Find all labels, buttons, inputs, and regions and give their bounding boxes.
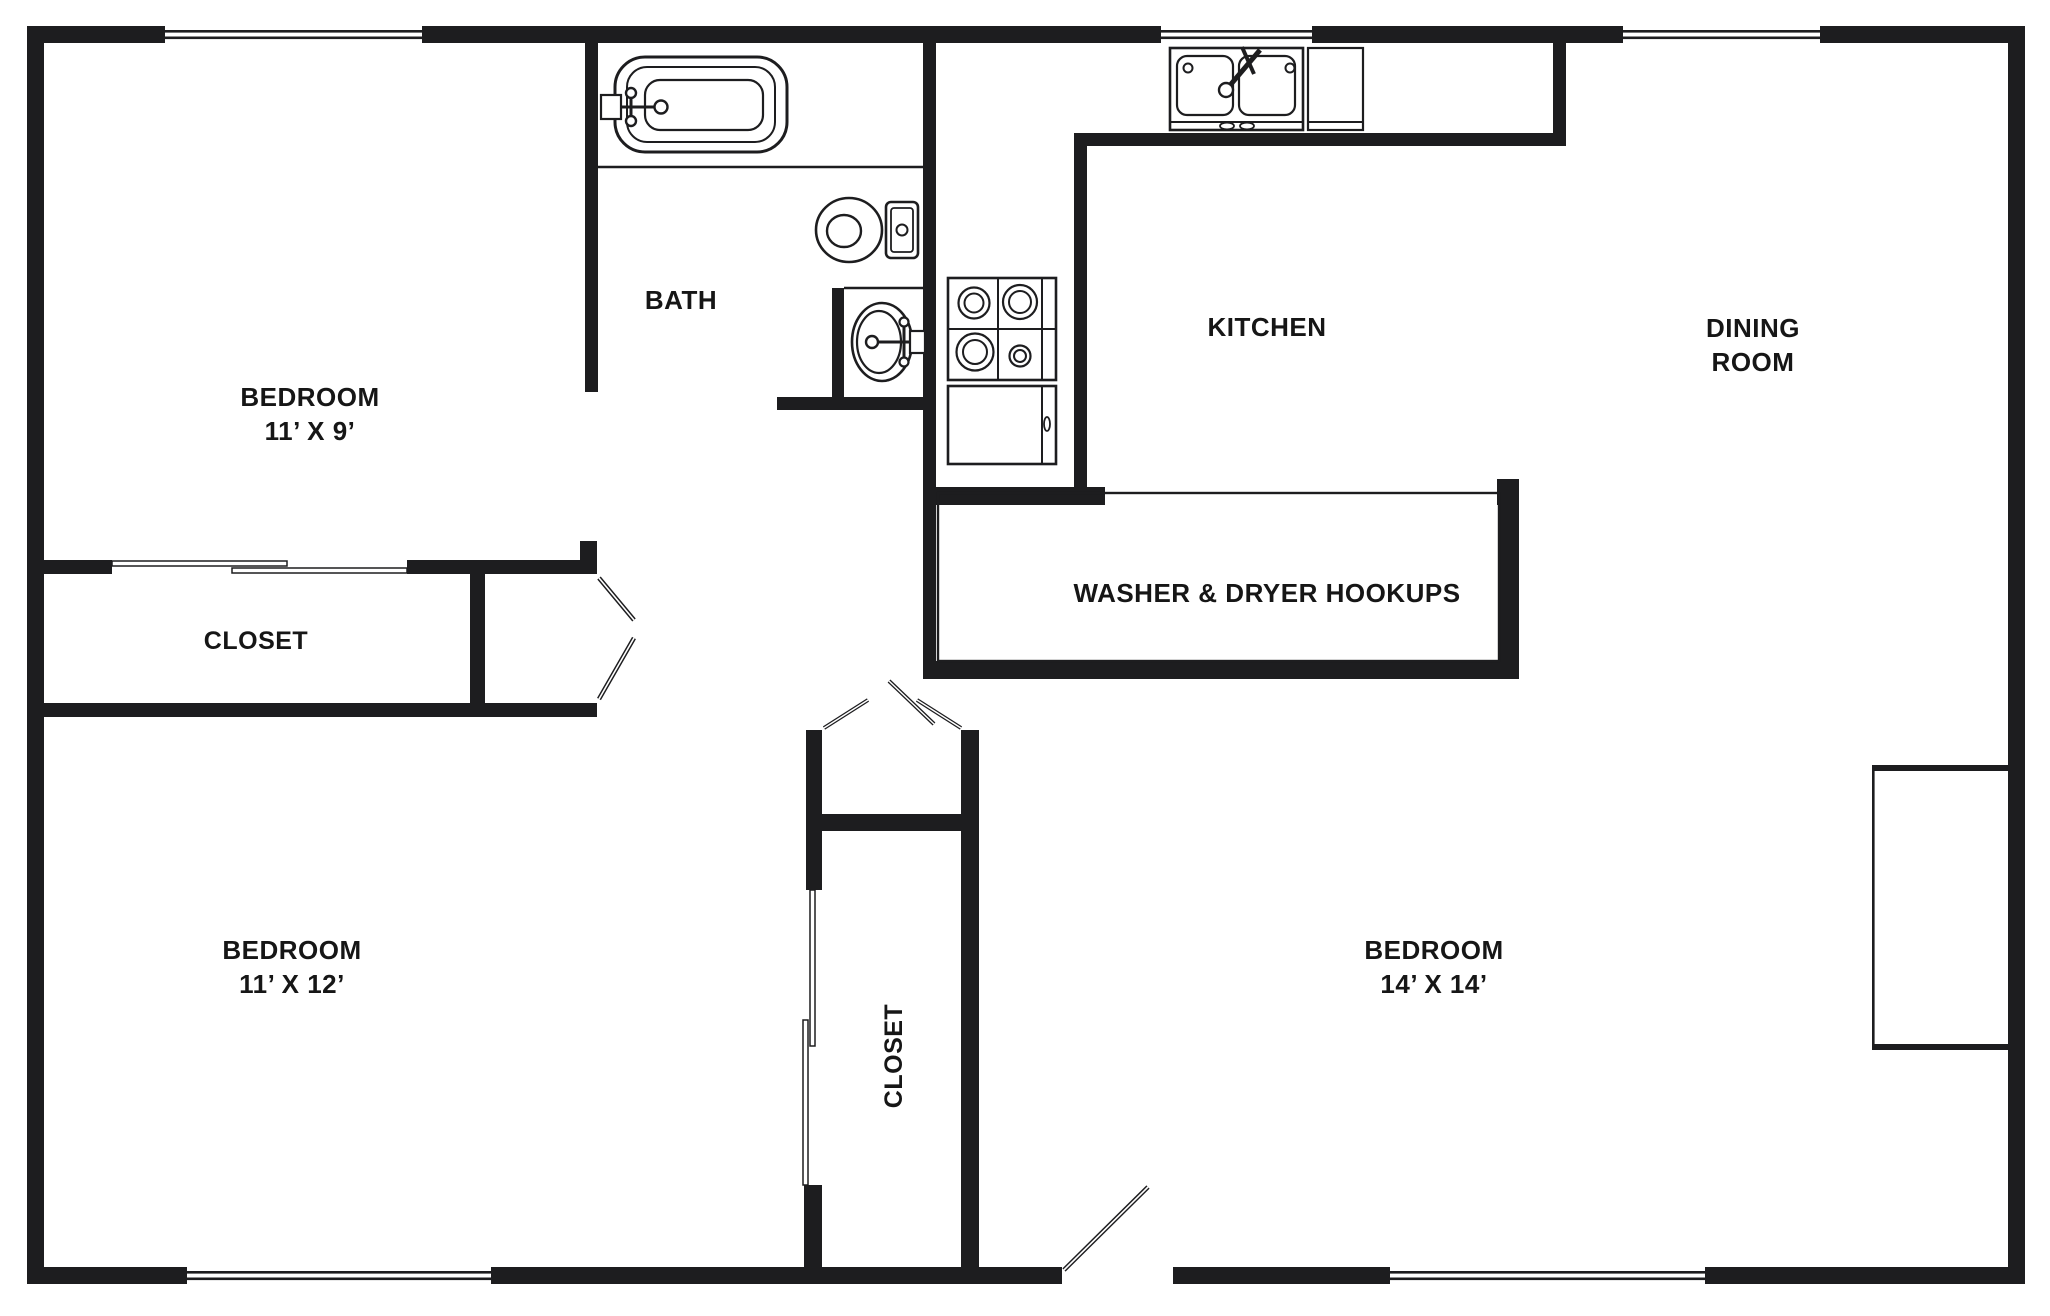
wall-right — [2008, 26, 2025, 1284]
stove-icon — [948, 278, 1056, 380]
toilet-icon — [816, 198, 918, 262]
wall-bedroom1-bath — [585, 43, 598, 392]
wall-bedcloset-bottom-stub — [804, 1185, 822, 1267]
wall-kitchen-dining-stub — [1553, 43, 1566, 133]
room-size: 11’ X 12’ — [222, 967, 361, 1001]
window-icon — [187, 1267, 491, 1284]
wall-laundry-bottom — [923, 661, 1519, 679]
room-name: CLOSET — [877, 1004, 911, 1108]
refrigerator-icon — [948, 386, 1056, 464]
door-leaf-icon — [889, 681, 934, 724]
wall-bedcloset-divider — [822, 814, 961, 831]
room-name: CLOSET — [204, 624, 308, 658]
wall-left — [27, 26, 44, 1284]
door-leaf-icon — [599, 638, 634, 699]
room-label-bedroom-bottom-right: BEDROOM 14’ X 14’ — [1364, 933, 1503, 1001]
wall-sink-alcove — [832, 288, 844, 410]
room-name: ROOM — [1706, 345, 1800, 379]
wall-hallcloset-divider — [470, 574, 485, 703]
room-label-kitchen: KITCHEN — [1207, 310, 1326, 344]
kitchen-counter-icon — [1308, 48, 1363, 130]
room-size: 11’ X 9’ — [240, 414, 379, 448]
built-in-wardrobe-icon — [1872, 765, 2008, 1050]
wall-hallcloset-bottom — [44, 703, 597, 717]
sliding-door-icon — [803, 1020, 808, 1185]
kitchen-double-sink-icon — [1170, 47, 1303, 130]
room-name: DINING — [1706, 311, 1800, 345]
window-icon — [1623, 26, 1820, 43]
bathtub-icon — [601, 57, 787, 152]
room-name: BEDROOM — [222, 933, 361, 967]
bathroom-sink-icon — [852, 303, 925, 381]
room-label-laundry: WASHER & DRYER HOOKUPS — [1073, 576, 1460, 610]
room-name: BEDROOM — [1364, 933, 1503, 967]
sliding-door-icon — [112, 561, 287, 566]
window-icon — [1390, 1267, 1705, 1284]
wall-kitchen-bottom — [936, 487, 1105, 505]
floor-plan: BEDROOM 11’ X 9’ BATH KITCHEN DINING ROO… — [0, 0, 2050, 1316]
room-label-bedroom-closet: CLOSET — [877, 1004, 911, 1108]
window-icon — [1161, 26, 1312, 43]
room-name: BATH — [645, 283, 717, 317]
room-name: KITCHEN — [1207, 310, 1326, 344]
wall-bath-bottom — [777, 397, 936, 410]
door-leaves — [599, 578, 1148, 1270]
door-leaf-icon — [599, 578, 634, 620]
door-leaf-icon — [824, 700, 868, 728]
floor-plan-drawing — [0, 0, 2050, 1316]
wall-bedcloset-right — [961, 730, 979, 1267]
wall-laundry-right — [1499, 479, 1519, 679]
door-opening-bottom — [1062, 1266, 1173, 1285]
room-label-bedroom-bottom-left: BEDROOM 11’ X 12’ — [222, 933, 361, 1001]
room-label-bedroom-top-left: BEDROOM 11’ X 9’ — [240, 380, 379, 448]
wall-hallcloset-top-left-stub — [44, 560, 112, 574]
windows — [165, 26, 1820, 1285]
room-label-bath: BATH — [645, 283, 717, 317]
sliding-door-icon — [232, 568, 407, 573]
room-name: WASHER & DRYER HOOKUPS — [1073, 576, 1460, 610]
wall-hallcloset-top-right — [407, 560, 597, 574]
outer-walls — [27, 26, 2025, 1284]
room-label-dining: DINING ROOM — [1706, 311, 1800, 379]
wall-hallcloset-up-stub — [580, 541, 597, 560]
wall-bedcloset-left-stub — [806, 730, 822, 890]
door-leaf-icon — [1064, 1187, 1148, 1270]
wall-kitchen-vertical — [1074, 133, 1087, 505]
window-icon — [165, 26, 422, 43]
wall-kitchen-horizontal — [1074, 133, 1566, 146]
room-label-hall-closet: CLOSET — [204, 624, 308, 658]
wall-bath-kitchen — [923, 43, 936, 679]
room-size: 14’ X 14’ — [1364, 967, 1503, 1001]
room-name: BEDROOM — [240, 380, 379, 414]
sliding-door-icon — [810, 890, 815, 1046]
